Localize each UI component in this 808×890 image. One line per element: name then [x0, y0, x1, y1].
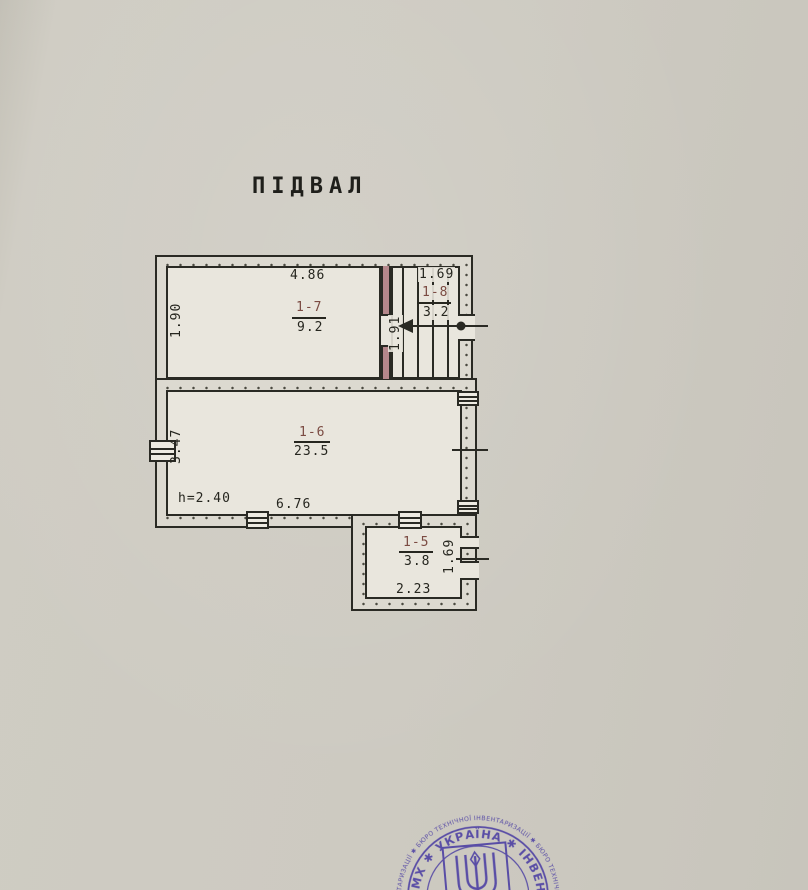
stair-direction-arrow	[398, 319, 488, 333]
official-round-stamp: БЮРО ТЕХНІЧНОЇ ІНВЕНТАРИЗАЦІЇ ✱ БЮРО ТЕХ…	[0, 0, 567, 890]
stair-start-dot-icon	[457, 322, 466, 331]
arrowhead-icon	[398, 319, 413, 333]
trident-icon	[456, 851, 497, 890]
scanned-floor-plan-page: ПІДВАЛ 4.86 1.90 1.69 1.91 3.47 6.76 h=2…	[0, 0, 808, 890]
stamp-ring-text: ЦИНЬЛЕМХ ✱ УКРАЇНА ✱ ІНВЕНТАРИЗ	[0, 0, 551, 890]
stamp-outer-ring-text: БЮРО ТЕХНІЧНОЇ ІНВЕНТАРИЗАЦІЇ ✱ БЮРО ТЕХ…	[0, 0, 564, 890]
plan-annotations-overlay: БЮРО ТЕХНІЧНОЇ ІНВЕНТАРИЗАЦІЇ ✱ БЮРО ТЕХ…	[0, 0, 808, 890]
